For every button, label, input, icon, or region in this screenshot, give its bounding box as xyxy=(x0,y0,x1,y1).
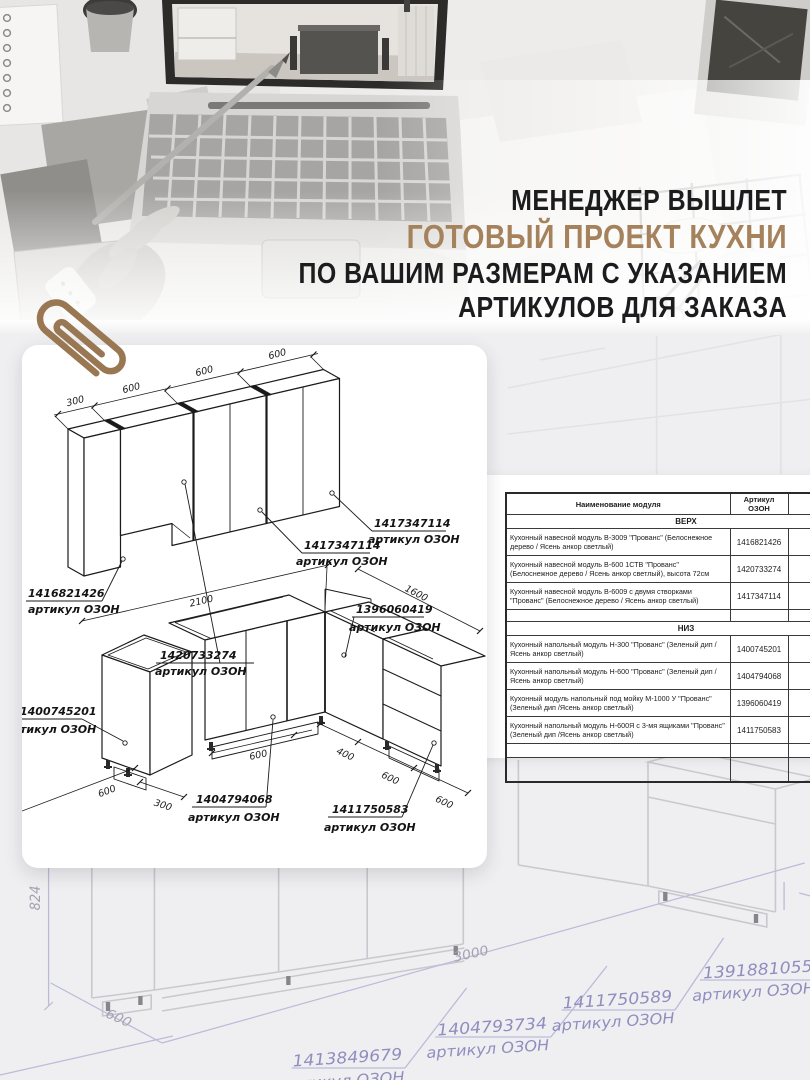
module-article: 1404794068 xyxy=(730,663,788,690)
module-name: Кухонный напольный модуль Н-300 "Прованс… xyxy=(506,636,730,663)
table-row: Кухонный навесной модуль В-600 1СТВ "Про… xyxy=(506,556,810,583)
dim-300: 300 xyxy=(152,798,173,814)
article-number: 1411750583 xyxy=(332,803,409,816)
base-cabinets-drawing xyxy=(102,589,485,790)
sketch-article-number: 1391881055 xyxy=(702,957,810,982)
module-article: 1411750583 xyxy=(730,717,788,744)
headline-line-4: АРТИКУЛОВ ДЛЯ ЗАКАЗА xyxy=(298,291,787,325)
module-article: 1396060419 xyxy=(730,690,788,717)
table-row: Кухонный напольный модуль Н-300 "Прованс… xyxy=(506,636,810,663)
module-qty xyxy=(788,556,810,583)
module-name: Кухонный напольный модуль Н-600Я с 3-мя … xyxy=(506,717,730,744)
table-row: Кухонный напольный модуль Н-600 "Прованс… xyxy=(506,663,810,690)
article-number: 1400745201 xyxy=(22,705,97,718)
sketch-article-number: 1411750589 xyxy=(562,987,673,1012)
laptop-screen-kitchen-photo xyxy=(172,0,438,82)
headline-line-3: ПО ВАШИМ РАЗМЕРАМ С УКАЗАНИЕМ xyxy=(298,257,787,291)
sketch-article-label: артикул ОЗОН xyxy=(281,1069,405,1080)
promo-page: { "header": { "line1": "МЕНЕДЖЕР ВЫШЛЕТ"… xyxy=(0,0,810,1080)
module-name: Кухонный навесной модуль В-6009 с двумя … xyxy=(506,583,730,610)
table-row: Кухонный напольный модуль Н-600Я с 3-мя … xyxy=(506,717,810,744)
article-number: 1404794068 xyxy=(196,793,273,806)
headline-line-2-accent: ГОТОВЫЙ ПРОЕКТ КУХНИ xyxy=(298,218,787,257)
col-header-name: Наименование модуля xyxy=(506,493,730,515)
plant-pot xyxy=(83,0,137,52)
spiral-notebook xyxy=(0,4,63,125)
sketch-article-number: 1413849679 xyxy=(292,1045,403,1070)
dim-600: 600 xyxy=(267,347,287,362)
kitchen-drawings: 300 600 600 600 1416821426 артикул ОЗОН … xyxy=(22,345,487,868)
module-name: Кухонный модуль напольный под мойку М-10… xyxy=(506,690,730,717)
module-qty xyxy=(788,636,810,663)
module-article: 1420733274 xyxy=(730,556,788,583)
module-name: Кухонный навесной модуль В-600 1СТВ "Про… xyxy=(506,556,730,583)
dim-600: 600 xyxy=(248,748,268,763)
dim-600: 600 xyxy=(194,364,214,379)
empty-row xyxy=(506,744,810,758)
headline-line-1: МЕНЕДЖЕР ВЫШЛЕТ xyxy=(298,184,787,218)
sketch-article-number: 1404793734 xyxy=(437,1014,548,1039)
headline: МЕНЕДЖЕР ВЫШЛЕТ ГОТОВЫЙ ПРОЕКТ КУХНИ ПО … xyxy=(219,184,787,326)
dim-600: 600 xyxy=(103,1006,134,1031)
article-label: артикул ОЗОН xyxy=(349,621,441,634)
empty-row xyxy=(506,758,810,782)
module-name: Кухонный навесной модуль В-3009 "Прованс… xyxy=(506,529,730,556)
module-name: Кухонный напольный модуль Н-600 "Прованс… xyxy=(506,663,730,690)
paperclip-icon xyxy=(20,286,130,401)
article-label: артикул ОЗОН xyxy=(155,665,247,678)
article-label: артикул ОЗОН xyxy=(368,533,460,546)
article-label: артикул ОЗОН xyxy=(296,555,388,568)
dim-600: 600 xyxy=(97,783,118,800)
dim-600: 600 xyxy=(434,794,455,812)
module-article: 1400745201 xyxy=(730,636,788,663)
kitchen-drawing-card: 300 600 600 600 1416821426 артикул ОЗОН … xyxy=(22,345,487,868)
module-article: 1416821426 xyxy=(730,529,788,556)
dim-600: 600 xyxy=(380,770,401,788)
article-label-clipped: тикул ОЗОН xyxy=(22,723,96,736)
article-number: 1396060419 xyxy=(356,603,433,616)
module-qty xyxy=(788,529,810,556)
sketch-dim-labels: 824 600 3000 700 xyxy=(28,864,810,1031)
col-header-article: Артикул ОЗОН xyxy=(730,493,788,515)
faint-wall-cabinets-sketch xyxy=(508,330,810,474)
article-label: артикул ОЗОН xyxy=(28,603,120,616)
module-qty xyxy=(788,690,810,717)
dim-824: 824 xyxy=(28,886,45,911)
col-header-qty: Кол-во xyxy=(788,493,810,515)
dim-1600: 1600 xyxy=(403,583,430,604)
article-number: 1417347114 xyxy=(374,517,451,530)
module-article: 1417347114 xyxy=(730,583,788,610)
modules-table-sheet: Наименование модуля Артикул ОЗОН Кол-во … xyxy=(476,475,810,758)
section-verh: ВЕРХ xyxy=(506,515,810,529)
sketch-article-label: артикул ОЗОН xyxy=(426,1037,550,1062)
modules-table: Наименование модуля Артикул ОЗОН Кол-во … xyxy=(505,492,810,783)
article-label: артикул ОЗОН xyxy=(324,821,416,834)
table-row: Кухонный навесной модуль В-3009 "Прованс… xyxy=(506,529,810,556)
table-row: Кухонный навесной модуль В-6009 с двумя … xyxy=(506,583,810,610)
article-label: артикул ОЗОН xyxy=(188,811,280,824)
empty-row xyxy=(506,610,810,622)
module-qty xyxy=(788,717,810,744)
sketch-article-callouts: 1413849679 артикул ОЗОН 1404793734 артик… xyxy=(281,957,810,1080)
dim-400: 400 xyxy=(335,746,356,764)
table-row: Кухонный модуль напольный под мойку М-10… xyxy=(506,690,810,717)
article-number: 1416821426 xyxy=(28,587,105,600)
module-qty xyxy=(788,663,810,690)
module-qty xyxy=(788,583,810,610)
sketch-article-label: артикул ОЗОН xyxy=(691,980,810,1005)
article-number: 1420733274 xyxy=(160,649,237,662)
section-niz: НИЗ xyxy=(506,622,810,636)
